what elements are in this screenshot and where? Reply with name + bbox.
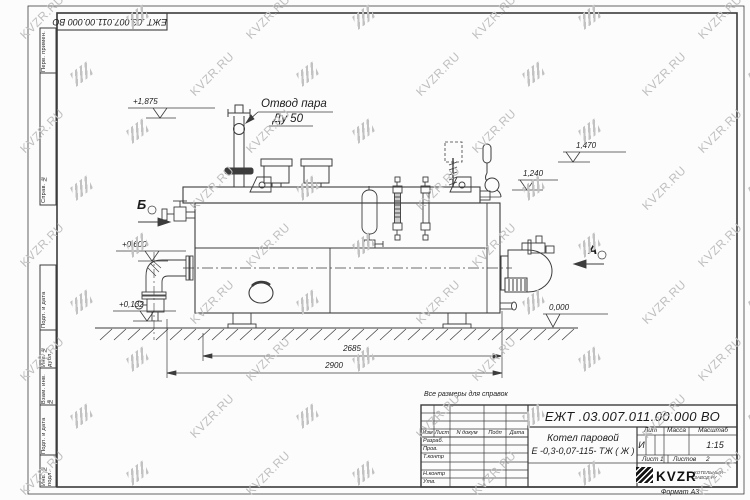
kvzr-logo-text: KVZR bbox=[656, 469, 697, 484]
col-podp: Подп bbox=[484, 431, 506, 437]
margin-field-inv-dubl: Инв. № дубл. bbox=[41, 331, 53, 367]
rotated-doc-number: ЕЖТ .03.007.011.00.000 ВО bbox=[57, 13, 167, 30]
blowdown-piping bbox=[135, 252, 193, 340]
steam-outlet-label-line2: Ду 50 bbox=[273, 114, 303, 126]
boiler-drawing-canvas bbox=[0, 0, 750, 500]
product-name-line1: Котел паровой bbox=[530, 434, 636, 444]
product-name-line2: Е -0,3-0,07-115- ТЖ ( Ж ) bbox=[528, 447, 638, 456]
margin-field-podp-data-2: Подп. и дата bbox=[41, 406, 47, 454]
level-label-1240: 1,240 bbox=[523, 170, 543, 178]
level-label-0600: +0,600 bbox=[122, 241, 147, 249]
kvzr-logo-icon bbox=[636, 467, 653, 483]
sheets-label: Листов bbox=[673, 457, 696, 463]
dimension-2685: 2685 bbox=[332, 345, 372, 353]
row-prov: Пров. bbox=[423, 447, 438, 453]
scale-value: 1:15 bbox=[695, 441, 735, 450]
view-label-a: А bbox=[588, 243, 597, 256]
level-label-0132: +0,132 bbox=[119, 301, 144, 309]
boiler-body bbox=[183, 187, 517, 328]
row-tkontr: Т.контр bbox=[423, 455, 444, 461]
view-label-b: Б bbox=[137, 198, 146, 211]
lit-value: И bbox=[637, 441, 646, 450]
elevation-marks bbox=[113, 108, 626, 327]
steam-outlet-pipe bbox=[225, 105, 253, 187]
sheet-value: 1 bbox=[660, 457, 664, 463]
level-label-1470: 1,470 bbox=[576, 142, 596, 150]
col-list: Лист bbox=[434, 431, 450, 437]
dimension-2900: 2900 bbox=[314, 362, 354, 370]
format-label: Формат А3 bbox=[635, 489, 725, 496]
steam-outlet-label-line1: Отвод пара bbox=[261, 99, 327, 111]
row-utv: Утв. bbox=[423, 480, 436, 486]
pressure-gauge-siphon bbox=[480, 144, 501, 197]
level-label-0000: 0,000 bbox=[549, 304, 569, 312]
col-ndoc: N докум bbox=[450, 431, 484, 437]
sheets-value: 2 bbox=[706, 457, 710, 463]
lifting-lugs bbox=[250, 177, 471, 192]
row-razrab: Разраб. bbox=[423, 439, 443, 445]
kvzr-sub-line2: ЗАВОД.РУ bbox=[694, 475, 717, 480]
level-label-1875: +1,875 bbox=[133, 98, 158, 106]
scale-header: Масштаб bbox=[689, 428, 737, 434]
margin-field-sprav-no: Справ. № bbox=[41, 75, 47, 203]
kvzr-logo-subtext: КОТЕЛЬНЫЙ ЗАВОД.РУ bbox=[694, 470, 723, 481]
kvzr-sub-line1: КОТЕЛЬНЫЙ bbox=[694, 470, 723, 475]
row-nkontr: Н.контр bbox=[423, 472, 445, 478]
drawing-sheet: ЕЖТ .03.007.011.00.000 ВО Перв. примен. … bbox=[0, 0, 750, 500]
col-izm: Изм bbox=[421, 431, 434, 437]
burner-assembly bbox=[501, 236, 554, 292]
margin-field-perv-primen: Перв. примен. bbox=[41, 29, 47, 72]
margin-field-vzam-inv: Взам. инв. № bbox=[41, 369, 53, 404]
margin-field-inv-podl: Инв. № подл. bbox=[41, 456, 53, 486]
col-data: Дата bbox=[506, 431, 528, 437]
feed-valve bbox=[162, 201, 195, 221]
doc-number: ЕЖТ .03.007.011.00.000 ВО bbox=[530, 410, 735, 423]
safety-valve bbox=[445, 142, 462, 187]
lit-header: Лит bbox=[637, 428, 664, 434]
ground-line bbox=[95, 328, 578, 340]
mass-header: Масса bbox=[664, 428, 689, 434]
sheet-label: Лист bbox=[642, 457, 658, 463]
water-level-gauges bbox=[362, 177, 430, 248]
top-equipment-boxes bbox=[261, 159, 332, 187]
note-all-dimensions: Все размеры для справок bbox=[424, 391, 508, 398]
margin-field-podp-data-1: Подп. и дата bbox=[41, 267, 47, 328]
